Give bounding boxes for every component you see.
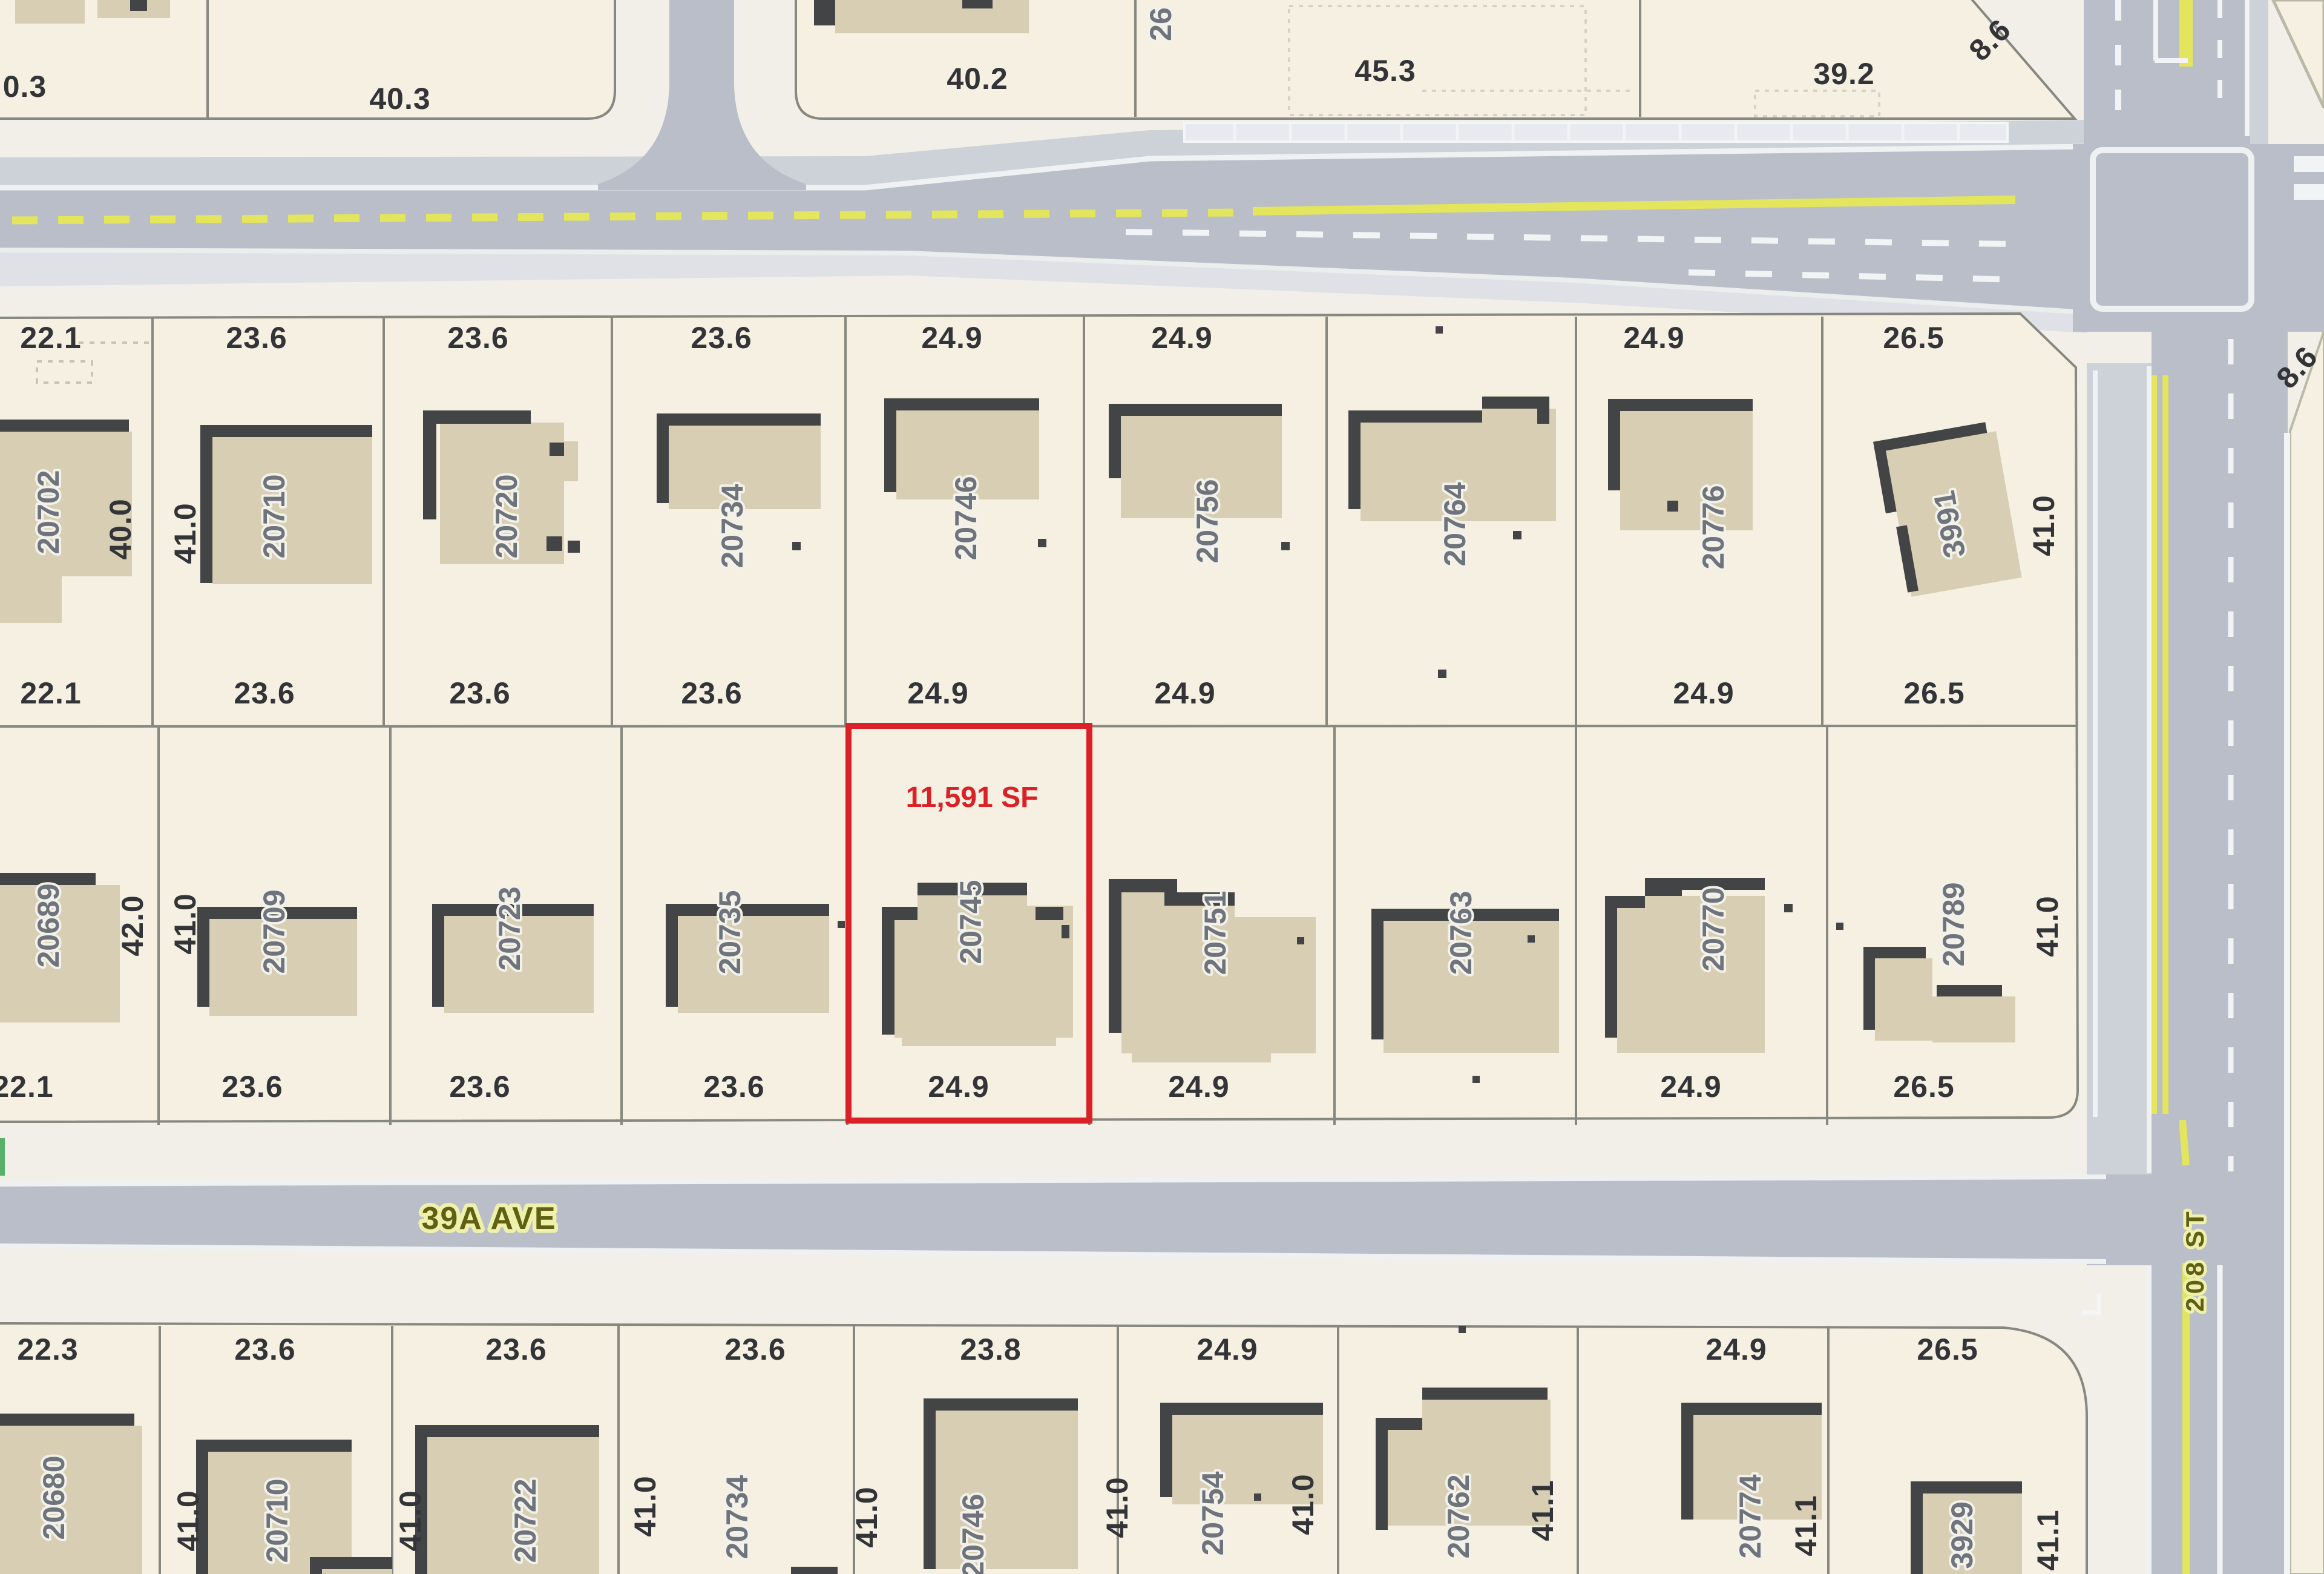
svg-text:39.2: 39.2 — [1813, 57, 1874, 91]
svg-text:3929: 3929 — [1945, 1501, 1979, 1569]
svg-text:22.1: 22.1 — [0, 1070, 54, 1104]
svg-text:23.6: 23.6 — [703, 1070, 764, 1104]
svg-text:20746: 20746 — [949, 476, 983, 560]
svg-text:24.9: 24.9 — [1168, 1070, 1229, 1104]
svg-text:39A AVE: 39A AVE — [421, 1201, 556, 1236]
svg-text:41.0: 41.0 — [1286, 1474, 1320, 1535]
svg-text:20735: 20735 — [713, 890, 747, 974]
svg-text:20770: 20770 — [1696, 887, 1730, 971]
svg-text:41.1: 41.1 — [1789, 1495, 1823, 1556]
svg-text:26.5: 26.5 — [1903, 676, 1965, 710]
svg-text:23.6: 23.6 — [447, 321, 508, 355]
svg-text:41.0: 41.0 — [628, 1475, 662, 1536]
svg-text:20722: 20722 — [508, 1478, 542, 1562]
svg-text:20745: 20745 — [954, 880, 988, 964]
svg-text:40.2: 40.2 — [947, 62, 1008, 96]
svg-text:20702: 20702 — [31, 470, 65, 554]
svg-text:41.0: 41.0 — [393, 1490, 427, 1551]
svg-text:41.1: 41.1 — [1526, 1480, 1560, 1541]
svg-text:41.0: 41.0 — [168, 502, 202, 564]
svg-text:41.0: 41.0 — [168, 893, 202, 954]
svg-text:24.9: 24.9 — [921, 321, 982, 355]
svg-text:24.9: 24.9 — [1154, 676, 1215, 710]
svg-text:23.6: 23.6 — [226, 321, 287, 355]
svg-text:24.9: 24.9 — [907, 676, 968, 710]
svg-text:20734: 20734 — [720, 1475, 754, 1559]
svg-text:42.0: 42.0 — [116, 895, 149, 956]
svg-text:40.0: 40.0 — [103, 498, 137, 559]
svg-text:41.0: 41.0 — [171, 1490, 205, 1551]
svg-text:20689: 20689 — [31, 883, 65, 967]
svg-text:26.5: 26.5 — [1893, 1070, 1954, 1104]
svg-text:20734: 20734 — [715, 484, 749, 568]
svg-text:23.8: 23.8 — [960, 1332, 1021, 1366]
svg-text:23.6: 23.6 — [485, 1332, 547, 1366]
svg-text:20776: 20776 — [1696, 485, 1730, 569]
svg-text:24.9: 24.9 — [1151, 321, 1212, 355]
svg-text:41.1: 41.1 — [2031, 1509, 2065, 1570]
svg-text:20762: 20762 — [1442, 1474, 1475, 1558]
svg-text:23.6: 23.6 — [222, 1070, 283, 1104]
svg-text:23.6: 23.6 — [724, 1332, 786, 1366]
svg-text:20754: 20754 — [1196, 1471, 1230, 1555]
svg-text:22.3: 22.3 — [17, 1332, 78, 1366]
svg-text:24.9: 24.9 — [1623, 321, 1684, 355]
svg-text:24.9: 24.9 — [1673, 676, 1734, 710]
svg-text:20756: 20756 — [1190, 479, 1224, 563]
svg-text:20720: 20720 — [490, 474, 524, 558]
svg-text:23.6: 23.6 — [449, 676, 510, 710]
svg-text:23.6: 23.6 — [681, 676, 742, 710]
svg-text:20723: 20723 — [493, 886, 527, 970]
svg-text:20764: 20764 — [1438, 482, 1472, 566]
svg-text:23.6: 23.6 — [234, 676, 295, 710]
svg-text:23.6: 23.6 — [449, 1070, 510, 1104]
svg-text:20710: 20710 — [260, 1478, 294, 1562]
svg-text:11,591 SF: 11,591 SF — [906, 782, 1039, 814]
svg-text:20746: 20746 — [956, 1493, 990, 1574]
svg-text:20789: 20789 — [1937, 882, 1971, 966]
svg-text:20751: 20751 — [1198, 891, 1232, 975]
svg-text:20680: 20680 — [37, 1455, 71, 1539]
svg-text:24.9: 24.9 — [928, 1070, 989, 1104]
svg-text:45.3: 45.3 — [1354, 54, 1416, 88]
svg-text:41.0: 41.0 — [1100, 1477, 1134, 1538]
svg-text:41.0: 41.0 — [850, 1486, 884, 1547]
svg-text:23.6: 23.6 — [234, 1332, 295, 1366]
svg-text:24.9: 24.9 — [1660, 1070, 1721, 1104]
svg-text:0.3: 0.3 — [3, 70, 47, 104]
svg-text:24.9: 24.9 — [1705, 1332, 1767, 1366]
svg-text:20709: 20709 — [257, 889, 291, 973]
svg-text:22.1: 22.1 — [20, 676, 81, 710]
svg-text:26.5: 26.5 — [1917, 1332, 1978, 1366]
svg-text:22.1: 22.1 — [20, 321, 81, 355]
svg-text:23.6: 23.6 — [691, 321, 752, 355]
svg-text:20763: 20763 — [1444, 891, 1478, 975]
svg-text:24.9: 24.9 — [1196, 1332, 1258, 1366]
svg-text:40.3: 40.3 — [369, 82, 430, 116]
svg-text:20774: 20774 — [1733, 1474, 1767, 1558]
svg-text:41.0: 41.0 — [2030, 895, 2064, 957]
svg-text:26: 26 — [1144, 7, 1178, 41]
svg-text:41.0: 41.0 — [2027, 495, 2061, 556]
svg-text:26.5: 26.5 — [1883, 321, 1944, 355]
svg-text:208 ST: 208 ST — [2181, 1208, 2209, 1311]
svg-text:20710: 20710 — [257, 474, 291, 558]
